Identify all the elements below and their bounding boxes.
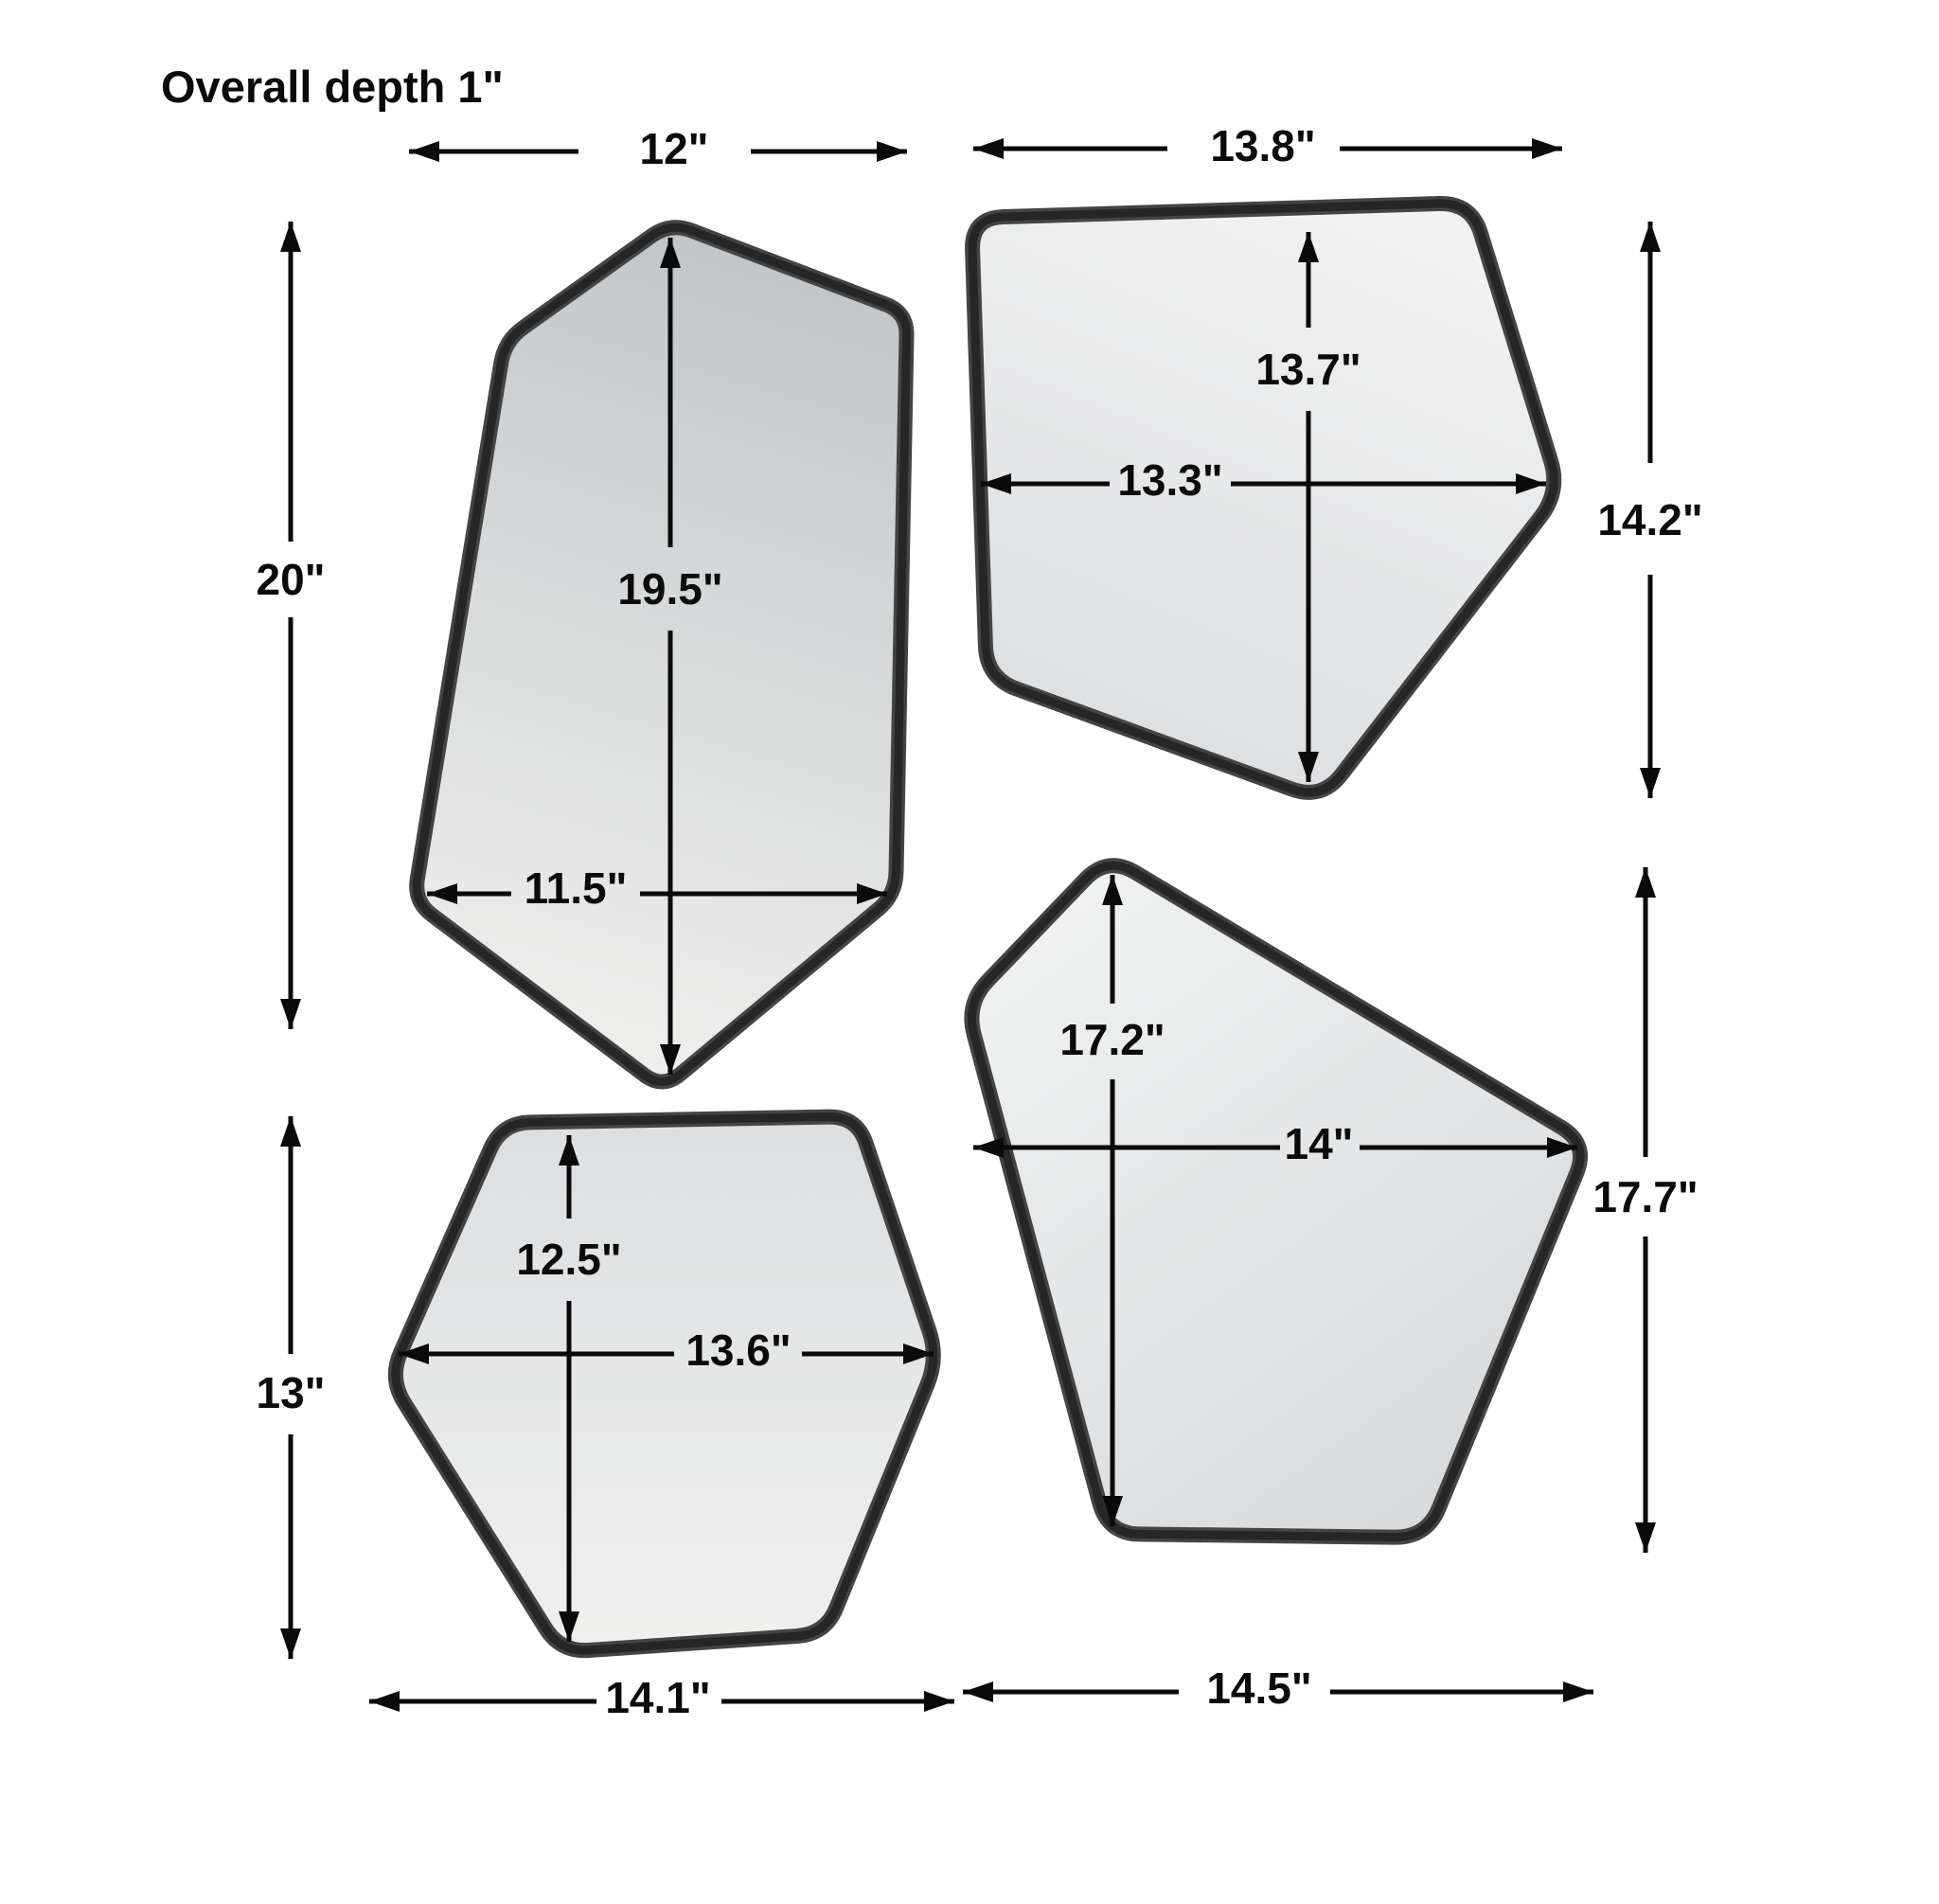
dimension-label-mirror-2-inner-height: 13.7" [1255, 345, 1361, 394]
dimension-mirror-2-outer-width: 13.8" [973, 121, 1562, 170]
arrowhead-down-icon [280, 1628, 301, 1659]
arrowhead-left-icon [369, 1691, 400, 1712]
arrowhead-right-icon [924, 1691, 954, 1712]
dimension-mirror-3-outer-height: 17.7" [1592, 867, 1698, 1553]
dimension-label-mirror-4-outer-height: 13" [257, 1368, 326, 1417]
dimension-label-mirror-3-outer-height: 17.7" [1592, 1172, 1698, 1221]
dimension-label-mirror-3-inner-height: 17.2" [1059, 1015, 1165, 1064]
dimension-label-mirror-4-inner-height: 12.5" [516, 1235, 621, 1284]
arrowhead-right-icon [1563, 1682, 1593, 1702]
arrowhead-down-icon [280, 999, 301, 1029]
dimension-mirror-2-outer-height: 14.2" [1597, 222, 1702, 798]
dimension-label-mirror-4-outer-width: 14.1" [605, 1673, 710, 1722]
dimension-mirror-4-outer-height: 13" [257, 1116, 326, 1659]
dimension-label-mirror-2-inner-width: 13.3" [1117, 455, 1222, 505]
mirror-set-dimension-diagram: Overall depth 1" 12"13.8"20"19.5"11.5"13… [0, 0, 1939, 1904]
arrowhead-left-icon [409, 141, 439, 162]
arrowhead-up-icon [1635, 867, 1656, 898]
arrowhead-up-icon [280, 222, 301, 252]
arrowhead-right-icon [1532, 138, 1562, 159]
arrowhead-up-icon [280, 1116, 301, 1147]
arrowhead-left-icon [973, 1137, 1004, 1158]
dimension-label-mirror-1-inner-width: 11.5" [525, 863, 628, 913]
arrowhead-down-icon [1635, 1522, 1656, 1553]
dimension-mirror-1-outer-height: 20" [257, 222, 326, 1029]
dimension-label-mirror-1-outer-height: 20" [257, 555, 326, 604]
arrowhead-right-icon [877, 141, 907, 162]
dimension-diagram-canvas: 12"13.8"20"19.5"11.5"13.7"13.3"14.2"17.2… [0, 0, 1939, 1904]
dimension-label-mirror-4-inner-width: 13.6" [685, 1326, 791, 1375]
arrowhead-down-icon [1640, 768, 1661, 798]
arrowhead-up-icon [1640, 222, 1661, 252]
dimension-mirror-3-outer-width: 14.5" [963, 1664, 1593, 1713]
dimension-label-mirror-2-outer-height: 14.2" [1597, 495, 1702, 544]
arrowhead-left-icon [973, 138, 1004, 159]
dimension-mirror-1-outer-width: 12" [409, 124, 907, 173]
dimension-label-mirror-2-outer-width: 13.8" [1210, 121, 1315, 170]
dimension-label-mirror-1-inner-height: 19.5" [617, 564, 722, 614]
arrowhead-left-icon [963, 1682, 993, 1702]
dimension-label-mirror-3-outer-width: 14.5" [1206, 1664, 1311, 1713]
dimension-label-mirror-1-outer-width: 12" [640, 124, 709, 173]
dimension-label-mirror-3-inner-width: 14" [1285, 1119, 1354, 1168]
mirror-bottom-right-pentagon [971, 865, 1580, 1537]
dimension-mirror-4-outer-width: 14.1" [369, 1673, 954, 1722]
